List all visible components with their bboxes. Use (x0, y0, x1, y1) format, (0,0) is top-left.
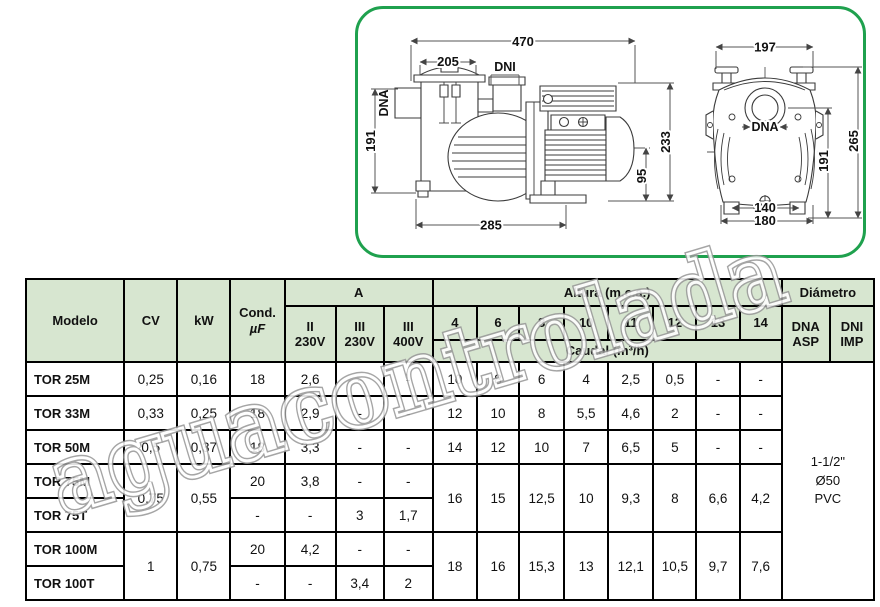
amp-col-line2: 230V (286, 334, 335, 349)
spec-cell: 10 (519, 430, 564, 464)
header-altura-14: 14 (740, 306, 782, 340)
spec-cell: 18 (230, 430, 284, 464)
dni-imp-line1: DNI (831, 319, 873, 334)
spec-cell: 4,6 (608, 396, 653, 430)
spec-cell: - (285, 566, 336, 600)
dim-side-lid-width: 205 (437, 54, 459, 69)
spec-cell: 4,2 (285, 532, 336, 566)
spec-cell: 0,37 (177, 430, 230, 464)
spec-cell: 5,5 (564, 396, 608, 430)
spec-cell: 2 (653, 396, 696, 430)
outlet-port-label: DNI (494, 60, 516, 74)
table-row: TOR 25M 0,25 0,16 18 2,6 - - 10 8 6 4 2,… (26, 362, 874, 396)
model-cell: TOR 25M (26, 362, 124, 396)
header-altura-11: 11 (608, 306, 653, 340)
spec-cell: 7,6 (740, 532, 782, 600)
spec-cell: 2,6 (285, 362, 336, 396)
spec-cell: 20 (230, 532, 284, 566)
diametro-line2: Ø50 (783, 472, 873, 491)
spec-cell: 12 (433, 396, 477, 430)
spec-cell: 18 (433, 532, 477, 600)
spec-cell: 5 (653, 430, 696, 464)
header-condensador: Cond. µF (230, 279, 284, 362)
spec-cell: 8 (477, 362, 519, 396)
spec-cell: - (384, 396, 433, 430)
spec-cell: 0,25 (177, 396, 230, 430)
spec-cell: 9,3 (608, 464, 653, 532)
spec-cell: 20 (230, 464, 284, 498)
spec-cell: - (696, 396, 739, 430)
spec-cell: 3,8 (285, 464, 336, 498)
amp-col-line1: III (337, 319, 383, 334)
spec-cell: 0,5 (653, 362, 696, 396)
dim-side-height-right: 233 (658, 131, 673, 153)
spec-cell: 8 (519, 396, 564, 430)
spec-cell: - (696, 362, 739, 396)
spec-cell: 16 (433, 464, 477, 532)
spec-cell: 4,2 (740, 464, 782, 532)
amp-col-line2: 230V (337, 334, 383, 349)
pump-front-view (706, 67, 823, 214)
model-cell: TOR 33M (26, 396, 124, 430)
header-amp-ii-230v: II 230V (285, 306, 336, 362)
inlet-port-label-front: DNA (751, 120, 778, 134)
spec-cell: 16 (477, 532, 519, 600)
spec-cell: 3,3 (285, 430, 336, 464)
header-altura-12: 12 (653, 306, 696, 340)
dim-side-axis-height: 95 (634, 169, 649, 183)
dim-front-height-axis: 191 (816, 150, 831, 172)
amp-col-line1: III (385, 319, 432, 334)
model-cell: TOR 75M (26, 464, 124, 498)
spec-cell: 10 (433, 362, 477, 396)
dim-front-height-total: 265 (846, 130, 861, 152)
spec-cell: 0,33 (124, 396, 177, 430)
header-dna-asp: DNA ASP (782, 306, 830, 362)
spec-cell: 3 (336, 498, 384, 532)
spec-cell: - (384, 362, 433, 396)
spec-cell: - (336, 396, 384, 430)
spec-cell: 6,6 (696, 464, 739, 532)
header-amperage-group: A (285, 279, 433, 306)
spec-cell: 10 (564, 464, 608, 532)
spec-cell: 12,5 (519, 464, 564, 532)
dna-asp-line1: DNA (783, 319, 829, 334)
spec-cell: 1 (124, 532, 177, 600)
header-altura-group: Altura (m.c.a.) (433, 279, 782, 306)
header-cond-line1: Cond. (231, 305, 283, 320)
spec-cell: 9,7 (696, 532, 739, 600)
dim-side-height-left: 191 (363, 130, 378, 152)
spec-cell: - (384, 430, 433, 464)
header-altura-13: 13 (696, 306, 739, 340)
spec-cell: - (336, 430, 384, 464)
spec-cell: - (336, 464, 384, 498)
amp-col-line1: II (286, 319, 335, 334)
spec-cell: 0,25 (124, 362, 177, 396)
header-dni-imp: DNI IMP (830, 306, 874, 362)
table-row: TOR 33M 0,33 0,25 18 2,9 - - 12 10 8 5,5… (26, 396, 874, 430)
inlet-port-label-side: DNA (377, 89, 391, 116)
spec-cell: 0,5 (124, 430, 177, 464)
spec-cell: 8 (653, 464, 696, 532)
spec-cell: 15,3 (519, 532, 564, 600)
spec-cell: 6,5 (608, 430, 653, 464)
spec-cell: - (230, 566, 284, 600)
dim-side-total-length: 470 (512, 34, 534, 49)
pump-spec-table: Modelo CV kW Cond. µF A Altura (m.c.a.) … (25, 278, 875, 601)
dni-imp-line2: IMP (831, 334, 873, 349)
header-modelo: Modelo (26, 279, 124, 362)
model-cell: TOR 100T (26, 566, 124, 600)
spec-cell: - (740, 430, 782, 464)
spec-cell: 15 (477, 464, 519, 532)
header-amp-iii-230v: III 230V (336, 306, 384, 362)
table-row: TOR 75M 0,75 0,55 20 3,8 - - 16 15 12,5 … (26, 464, 874, 498)
spec-cell: 13 (564, 532, 608, 600)
spec-cell: 3,4 (336, 566, 384, 600)
spec-cell: 14 (433, 430, 477, 464)
header-amp-iii-400v: III 400V (384, 306, 433, 362)
spec-cell: 4 (564, 362, 608, 396)
spec-cell: 12 (477, 430, 519, 464)
spec-cell: 0,55 (177, 464, 230, 532)
spec-cell: 1,7 (384, 498, 433, 532)
spec-cell: - (384, 464, 433, 498)
model-cell: TOR 50M (26, 430, 124, 464)
diametro-line3: PVC (783, 490, 873, 509)
spec-cell: 12,1 (608, 532, 653, 600)
datasheet-page: { "drawing": { "side_view": { "dim_top_w… (0, 0, 880, 607)
dna-asp-line2: ASP (783, 334, 829, 349)
spec-cell: - (285, 498, 336, 532)
amp-col-line2: 400V (385, 334, 432, 349)
diametro-cell: 1-1/2" Ø50 PVC (782, 362, 874, 600)
header-altura-10: 10 (564, 306, 608, 340)
spec-cell: 0,75 (124, 464, 177, 532)
pump-side-view (395, 59, 650, 203)
dim-front-feet-outer: 180 (754, 213, 776, 228)
table-row: TOR 50M 0,5 0,37 18 3,3 - - 14 12 10 7 6… (26, 430, 874, 464)
spec-cell: - (230, 498, 284, 532)
spec-cell: - (336, 362, 384, 396)
header-diametro-group: Diámetro (782, 279, 874, 306)
spec-cell: 6 (519, 362, 564, 396)
pump-dimension-drawing: 470 205 DNI DNA 191 233 95 285 (358, 9, 863, 255)
spec-cell: 10,5 (653, 532, 696, 600)
header-cv: CV (124, 279, 177, 362)
header-cond-line2: µF (231, 321, 283, 336)
header-caudal: Caudal (m³/h) (433, 340, 782, 362)
spec-cell: 7 (564, 430, 608, 464)
dim-side-base-length: 285 (480, 218, 502, 233)
model-cell: TOR 100M (26, 532, 124, 566)
spec-cell: - (384, 532, 433, 566)
spec-cell: - (740, 396, 782, 430)
spec-cell: 2 (384, 566, 433, 600)
dim-front-width: 197 (754, 40, 776, 55)
table-row: TOR 100M 1 0,75 20 4,2 - - 18 16 15,3 13… (26, 532, 874, 566)
spec-cell: 18 (230, 396, 284, 430)
spec-cell: 2,5 (608, 362, 653, 396)
spec-cell: 18 (230, 362, 284, 396)
spec-cell: - (336, 532, 384, 566)
technical-drawing-panel: 470 205 DNI DNA 191 233 95 285 (355, 6, 866, 258)
spec-cell: 10 (477, 396, 519, 430)
header-altura-4: 4 (433, 306, 477, 340)
spec-cell: - (696, 430, 739, 464)
header-altura-8: 8 (519, 306, 564, 340)
model-cell: TOR 75T (26, 498, 124, 532)
header-altura-6: 6 (477, 306, 519, 340)
spec-cell: 0,16 (177, 362, 230, 396)
diametro-line1: 1-1/2" (783, 453, 873, 472)
header-kw: kW (177, 279, 230, 362)
spec-cell: - (740, 362, 782, 396)
spec-cell: 0,75 (177, 532, 230, 600)
spec-cell: 2,9 (285, 396, 336, 430)
